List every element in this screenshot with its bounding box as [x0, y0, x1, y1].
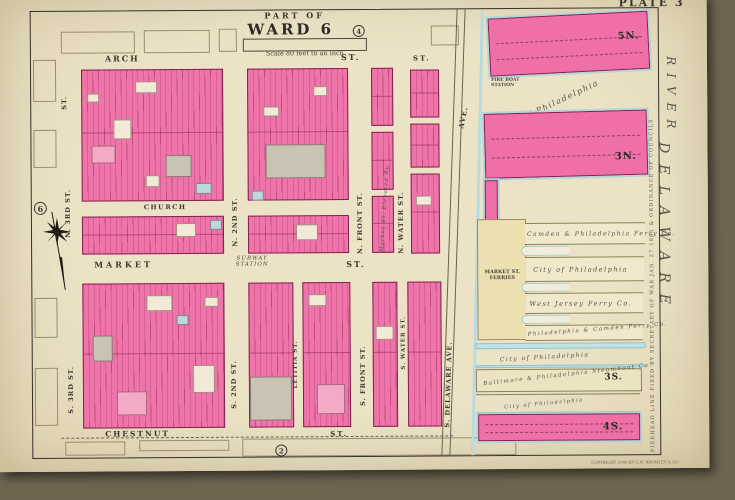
building [416, 196, 432, 206]
building [313, 86, 327, 96]
building [265, 144, 325, 178]
building [176, 315, 188, 325]
pier-4s-label: 4S. [603, 421, 623, 432]
building [308, 294, 326, 306]
street-label-arch-st2: ST. [413, 54, 431, 63]
city-of-philadelphia-label: City of Philadelphia [533, 265, 628, 274]
street-label-s2nd: S. 2ND ST. [230, 360, 238, 408]
compass-icon [38, 210, 79, 294]
river-name-river: RIVER [664, 56, 678, 136]
building [376, 326, 394, 340]
building [252, 191, 264, 201]
building [91, 145, 115, 163]
ferry-pier: West Jersey Ferry Co. [525, 292, 643, 314]
west-jersey-ferry-label: West Jersey Ferry Co. [529, 299, 632, 308]
building [113, 119, 131, 139]
building [146, 295, 172, 311]
building [263, 106, 279, 116]
city-block [371, 132, 393, 190]
building [117, 391, 147, 415]
street-label-nwater: N. WATER ST. [397, 192, 405, 254]
copyright-text: COPYRIGHT 1908 BY G.W. BROMLEY & CO. [591, 460, 679, 465]
water-slip [476, 342, 646, 349]
pier-line [497, 52, 642, 60]
street-label-s3rd: S. 3RD ST. [67, 366, 75, 414]
building [296, 224, 318, 240]
margin-box [219, 29, 237, 52]
margin-box [33, 60, 56, 102]
title-ward: WARD 6 [235, 20, 347, 39]
pier-line [492, 135, 640, 140]
city-block [410, 123, 439, 167]
ferries-label: MARKET ST. FERRIES [479, 269, 525, 281]
pier-4s: 4S. [478, 413, 640, 441]
street-label-sfront: S. FRONT ST. [359, 345, 367, 406]
ferry-pier: Camden & Philadelphia Ferry Co. [525, 222, 645, 245]
building [135, 81, 157, 93]
building [87, 94, 99, 103]
building [146, 175, 160, 187]
street-label-nfront: N. FRONT ST. [356, 192, 364, 254]
margin-box [33, 130, 56, 168]
map-page: PLATE 3 PART OF WARD 6 4 Scale 80 feet t… [0, 0, 709, 472]
title-part-of: PART OF [249, 10, 341, 21]
ferry-slip [521, 246, 569, 256]
street-label-church: CHURCH [144, 203, 187, 211]
pier-strip: City of Philadelphia [476, 350, 646, 364]
pier-5n-label: 5N. [617, 30, 639, 42]
city-block [82, 216, 224, 255]
margin-box [35, 368, 58, 426]
atlas-photo: { "plate_label": "PLATE 3", "title_block… [0, 0, 735, 500]
building [176, 223, 196, 237]
margin-box [34, 298, 57, 338]
street-label-n3rd: N. 3RD ST. [64, 189, 72, 238]
street-label-letitia: LETITIA ST. [293, 340, 299, 388]
scale-text: Scale 80 feet to an inch [266, 49, 344, 57]
building [210, 220, 222, 230]
street-label-market: MARKET [94, 259, 153, 269]
street-label-n2nd: N. 2ND ST. [231, 197, 239, 246]
scale-box: Scale 80 feet to an inch [243, 38, 367, 52]
building [250, 376, 292, 420]
building [193, 365, 215, 393]
ferry-slip [521, 283, 569, 292]
city-block [410, 69, 439, 117]
adjacent-plate-circle-2: 2 [275, 444, 287, 456]
street-label-arch-st: ST. [341, 52, 361, 62]
city-of-philadelphia-label: City of Philadelphia [500, 351, 590, 363]
city-of-philadelphia-label: City of Philadelphia [504, 397, 584, 410]
building [196, 183, 212, 194]
margin-box [65, 441, 125, 455]
city-block [372, 282, 398, 427]
building [93, 335, 113, 361]
building [204, 297, 218, 307]
street-label-arch: ARCH [105, 53, 140, 63]
fire-boat-station-label: FIRE BOAT STATION [491, 77, 529, 88]
adjacent-plate-circle-4: 4 [353, 25, 365, 37]
pier-strip: City of Philadelphia [476, 393, 640, 413]
ferry-slip [522, 315, 570, 324]
city-block [411, 173, 440, 253]
pier-3s: Baltimore & Philadelphia Steamboat Co. 3… [476, 368, 642, 392]
pier-3n-label: 3N. [615, 151, 637, 163]
city-block [407, 281, 442, 426]
city-block [247, 68, 349, 201]
street-label-swater: S. WATER ST. [401, 316, 407, 369]
pier-3s-label: 3S. [604, 372, 623, 382]
city-block [371, 68, 393, 126]
pier-5n: 5N. [488, 11, 651, 77]
street-label-st-vertical: ST. [60, 96, 68, 110]
margin-box [61, 31, 135, 53]
pier-3n: 3N. [484, 110, 649, 179]
river-name-delaware: DELAWARE [655, 142, 672, 315]
ferry-pier: City of Philadelphia [525, 256, 644, 282]
margin-box [139, 440, 229, 452]
subway-station-label: SUBWAY STATION [224, 255, 280, 267]
building [166, 155, 192, 177]
margin-box [144, 30, 210, 53]
street-label-market-st: ST. [346, 259, 366, 269]
building [317, 384, 345, 414]
ferry-pier: Philadelphia & Camden Ferry Co. [526, 324, 643, 341]
